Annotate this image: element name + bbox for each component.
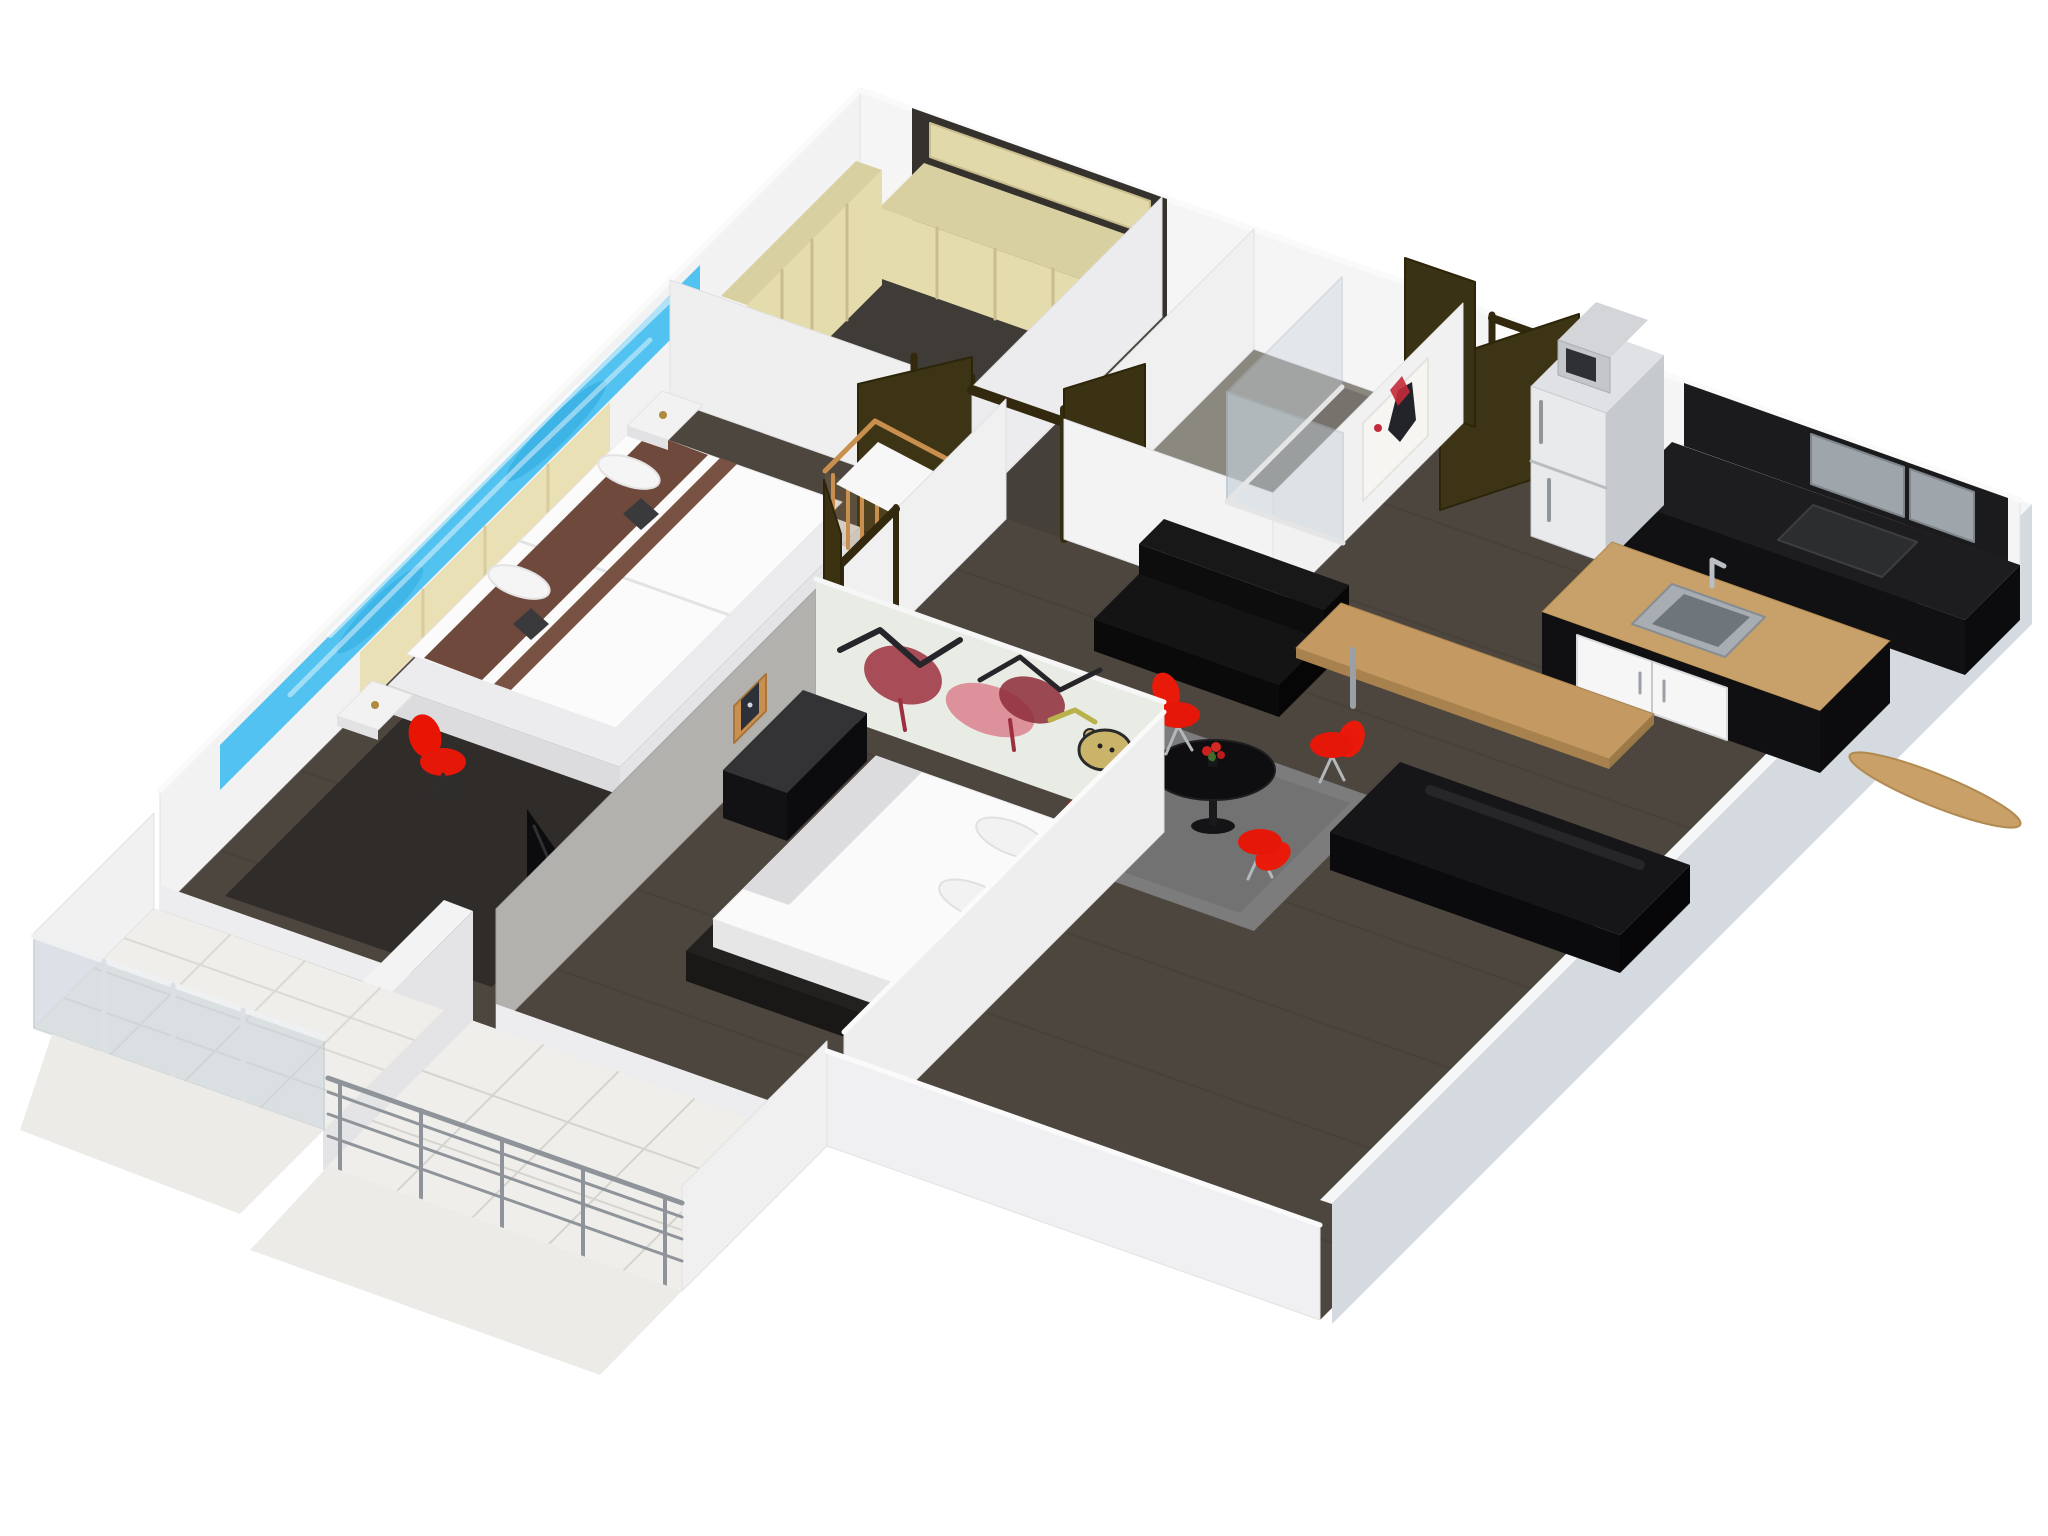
surfboard-wood — [1844, 741, 2027, 840]
flower-red — [1211, 742, 1221, 752]
scene-canvas — [0, 0, 2048, 1536]
apartment-3d-floorplan — [0, 0, 2048, 1536]
mural-teddy-eye — [1098, 744, 1103, 749]
artwork-figure-red-dot — [1374, 424, 1382, 432]
dining-chair-red-seat — [1310, 732, 1354, 758]
nightstand-knob-gold — [371, 701, 379, 709]
nightstand-knob-gold — [659, 411, 667, 419]
flower-green — [1208, 753, 1216, 761]
mural-teddy-eye — [1110, 748, 1115, 753]
scene-root — [20, 90, 2032, 1375]
flower-red — [1217, 751, 1225, 759]
bedroom1-chair-red-seat — [420, 748, 466, 776]
dining-chair-red-seat — [1238, 829, 1282, 855]
framed-picture-speck — [748, 703, 753, 708]
